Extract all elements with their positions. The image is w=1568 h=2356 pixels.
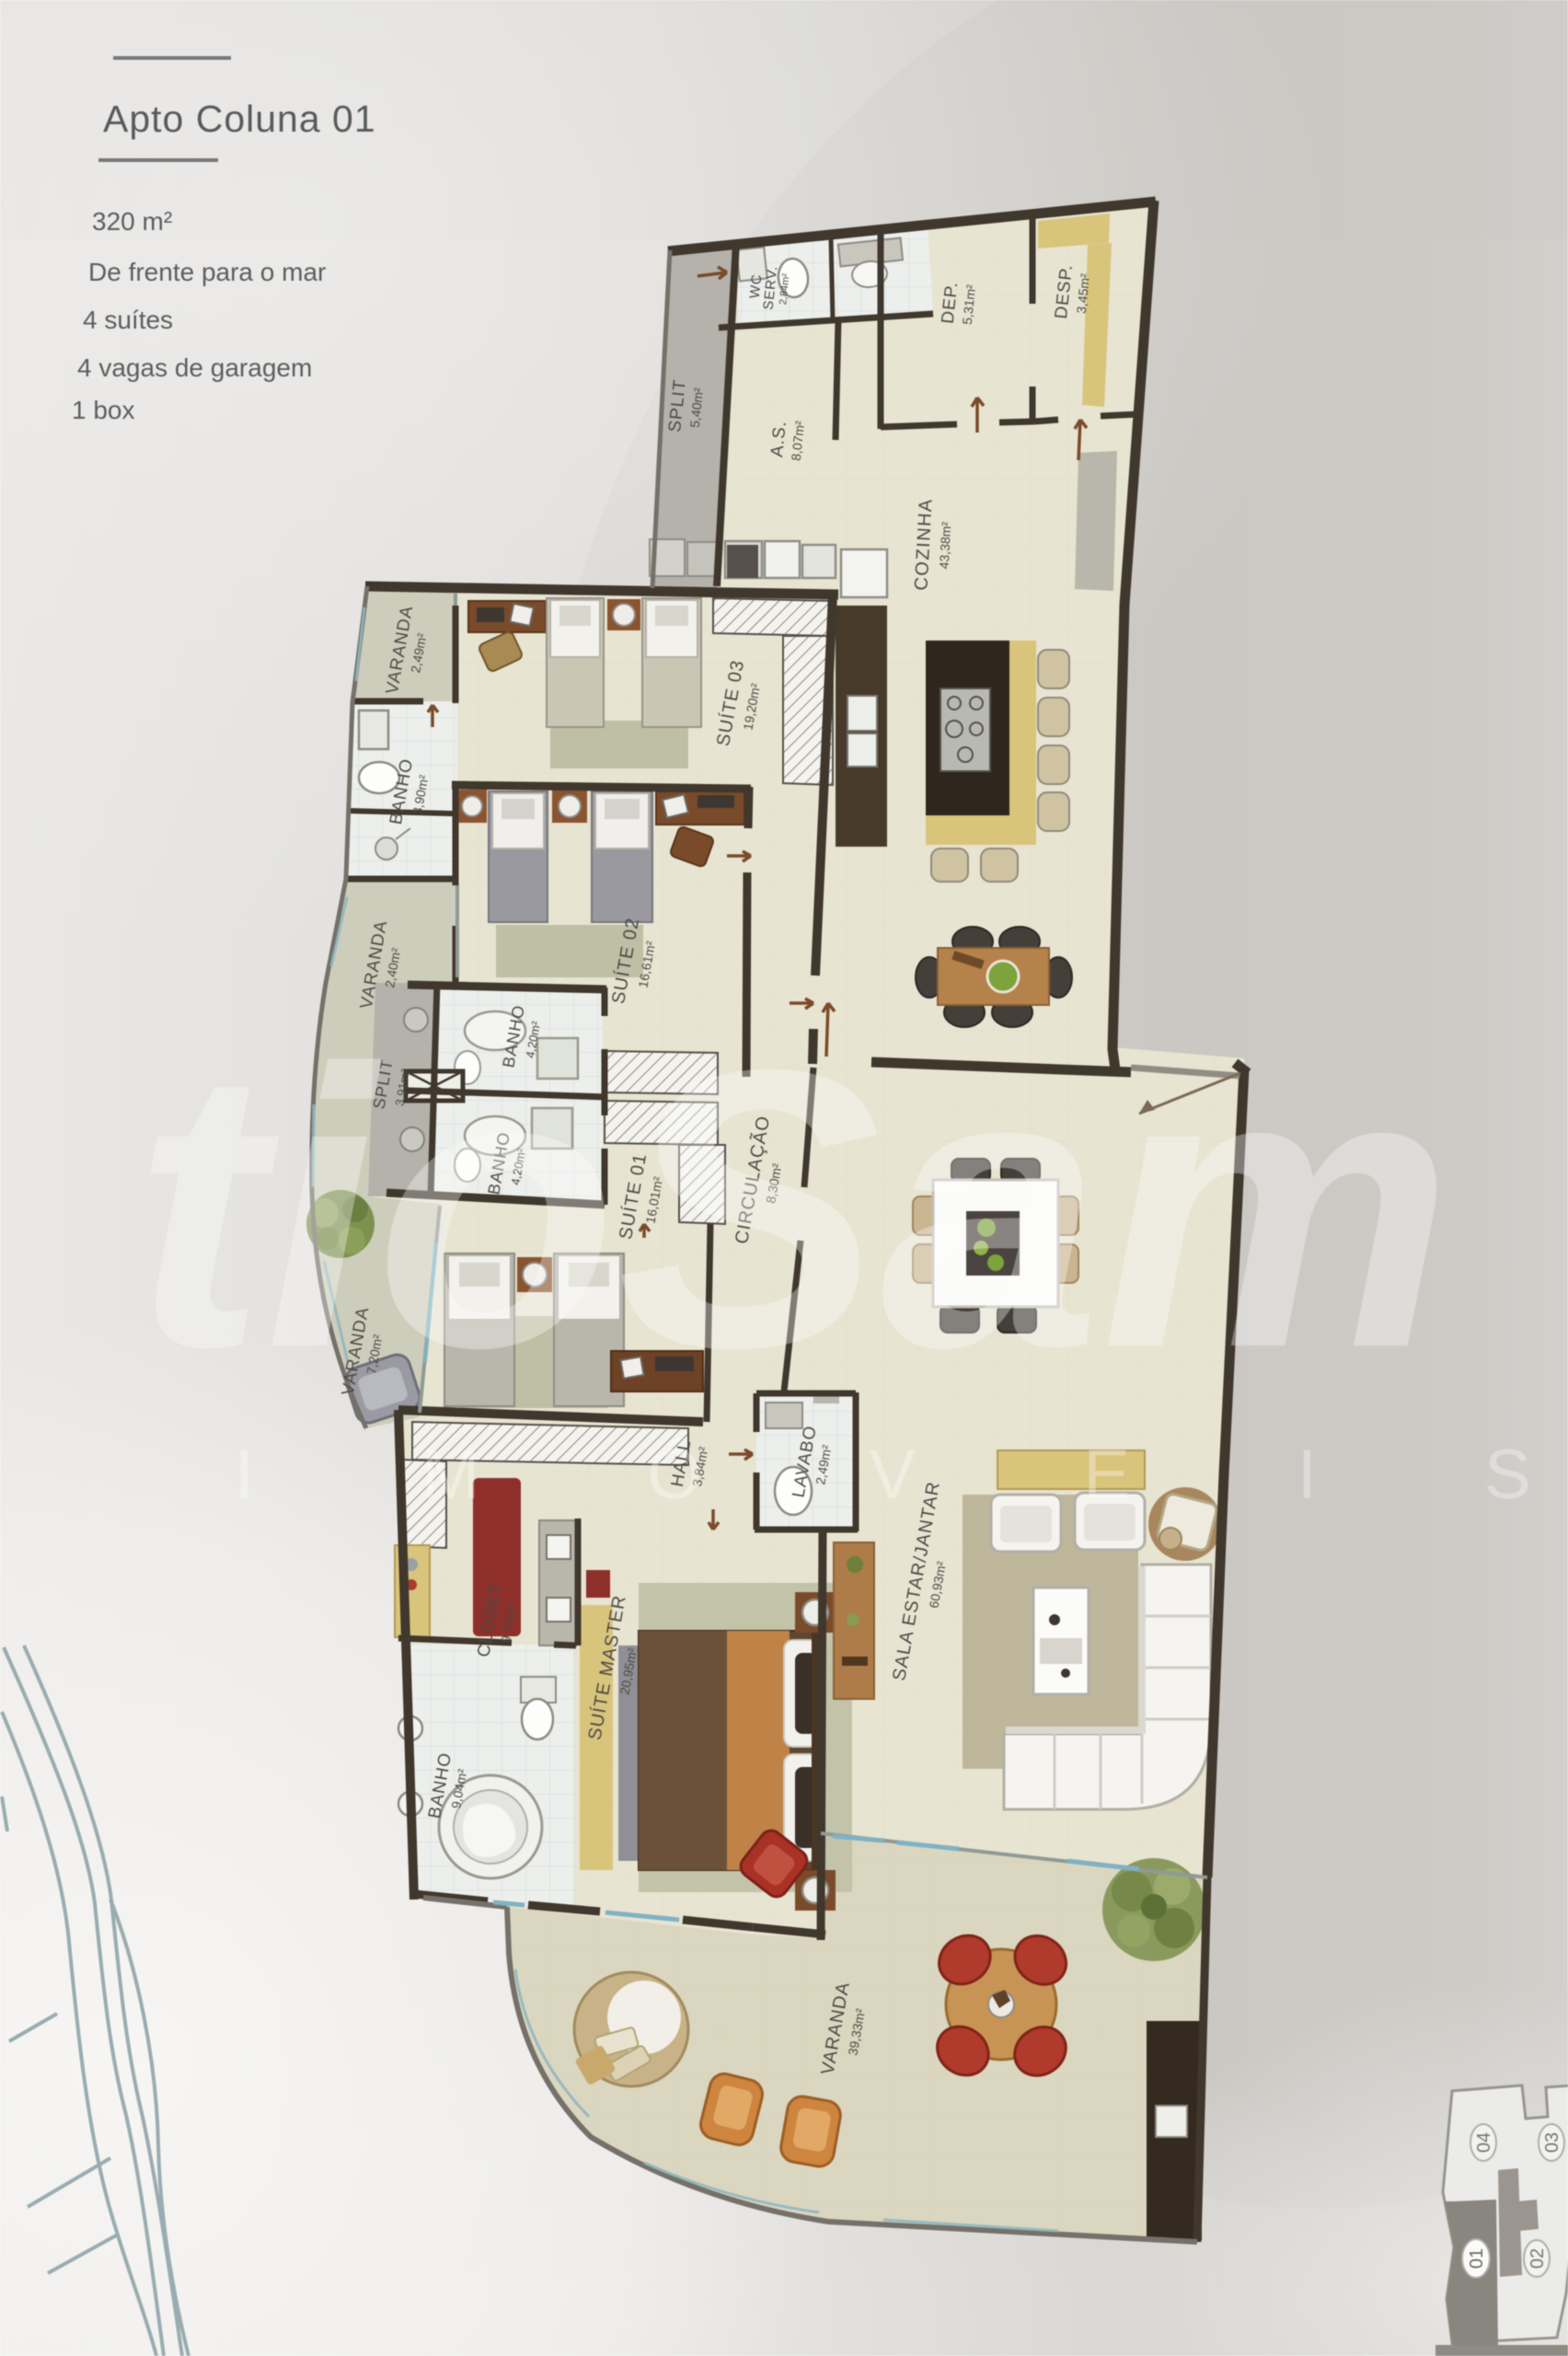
svg-text:02: 02 [1528,2248,1548,2269]
svg-text:De frente para o mar: De frente para o mar [88,258,326,286]
svg-text:4 suítes: 4 suítes [83,306,173,334]
svg-text:320 m²: 320 m² [92,207,172,236]
svg-text:A.S.: A.S. [767,420,790,458]
svg-text:01: 01 [1467,2248,1487,2269]
svg-text:IMÓVEIS: IMÓVEIS [235,1436,1568,1514]
svg-text:tioSam: tioSam [133,988,1453,1430]
svg-text:43,38m²: 43,38m² [937,521,954,569]
svg-text:1 box: 1 box [72,396,135,424]
svg-text:Apto Coluna 01: Apto Coluna 01 [103,98,376,140]
svg-text:4 vagas de garagem: 4 vagas de garagem [77,353,312,382]
svg-text:03: 03 [1542,2132,1562,2153]
svg-text:04: 04 [1474,2132,1494,2153]
